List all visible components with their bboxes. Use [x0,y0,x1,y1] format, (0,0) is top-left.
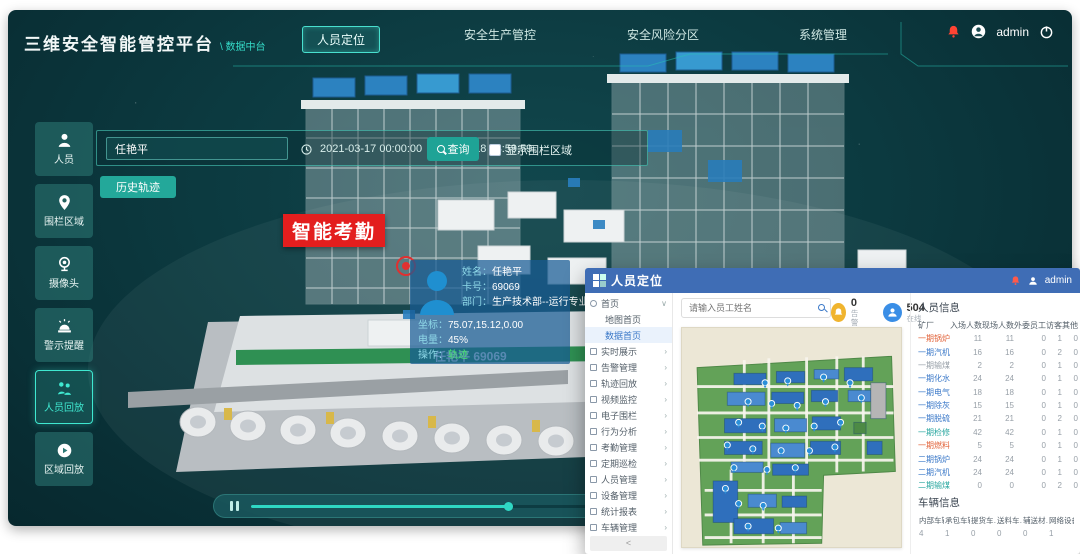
person-count-cell: 24 [950,466,982,479]
person-count-cell: 0 [1014,466,1046,479]
stat-text: 0告警 [851,298,863,327]
tooltip-identity-rows: 姓名：任艳平卡号：69069部门：生产技术部--运行专业 [462,265,589,310]
person-count-cell: 0 [1014,332,1046,345]
menu-item-label: 告警管理 [601,361,637,374]
plant-name-link[interactable]: 一期脱硫 [918,412,950,425]
person-count-cell: 1 [1046,466,1062,479]
person-count-cell: 1 [1046,359,1062,372]
person-count-cell: 24 [950,452,982,465]
person-count-cell: 1 [1046,452,1062,465]
person-count-cell: 0 [1062,452,1078,465]
menu-item-label: 视频监控 [601,393,637,406]
tooltip-row: 操作：轨迹 [418,348,523,363]
vehicle-count-cell: 0 [996,527,1022,540]
people-playback-icon [56,380,73,397]
vehicle-count-cell: 1 [1048,527,1074,540]
site-map-svg [682,328,901,547]
person-count-cell: 24 [950,372,982,385]
stat-value: 0 [851,298,863,309]
person-info-table: 矿厂入场人数现场人数外委员工访客其他 一期锅炉1111010一期汽机161602… [918,319,1078,493]
person-count-cell: 0 [1014,372,1046,385]
vehicle-col-1: 内部车辆 [918,514,944,527]
track-icon [590,380,597,387]
person-count-cell: 2 [1046,412,1062,425]
person-count-cell: 18 [950,386,982,399]
show-fence-checkbox-row: 显示围栏区域 [489,142,572,158]
overlay-topbar: 0告警504在线 [681,298,902,324]
inspection-icon [590,460,597,467]
sidebar-item-2[interactable]: 围栏区域 [35,184,93,238]
person-icon [56,132,73,149]
menu-item-label: 行为分析 [601,425,637,438]
table-row: 一期燃料55010 [918,439,1078,452]
person-count-cell: 0 [1014,479,1046,492]
header-tab-3[interactable]: 安全风险分区 [627,26,699,43]
query-toolbar: 2021-03-17 00:00:00 2021-03-18 23:59:59 … [96,130,648,166]
home-icon [590,300,597,307]
vehicle-info-title: 车辆信息 [918,495,1073,510]
person-count-cell: 0 [950,479,982,492]
menu-item-label: 轨迹回放 [601,377,637,390]
person-count-cell: 2 [950,359,982,372]
vehicle-col-2: 承包车辆 [944,514,970,527]
search-icon [437,145,445,153]
header-tab-2[interactable]: 安全生产管控 [464,26,536,43]
overlay-header: 人员定位 admin [585,268,1080,293]
tooltip-label: 电量： [418,335,448,346]
person-count-cell: 0 [1014,439,1046,452]
sidebar-item-label: 人员回放 [44,399,84,414]
table-row: 一期除灰1515010 [918,399,1078,412]
area-playback-icon [56,442,73,459]
overlay-body: 首页∨地图首页数据首页实时展示›告警管理›轨迹回放›视频监控›电子围栏›行为分析… [585,293,1080,554]
alert-icon [590,364,597,371]
person-count-cell: 1 [1046,426,1062,439]
monitor-icon [590,348,597,355]
chevron-right-icon: › [664,491,667,500]
table-row: 一期锅炉1111010 [918,332,1078,345]
user-avatar-icon [971,24,986,39]
personnel-location-panel: 人员定位 admin 首页∨地图首页数据首页实时展示›告警管理›轨迹回放›视频监… [585,268,1080,554]
table-row: 二期锅炉2424010 [918,452,1078,465]
playback-knob[interactable] [504,502,513,511]
person-count-cell: 1 [1046,332,1062,345]
table-row: 一期脱硫2121020 [918,412,1078,425]
menu-item-label: 人员管理 [601,473,637,486]
vehicle-col-6: 网络设备 [1048,514,1074,527]
person-count-cell: 24 [982,372,1014,385]
overlay-menu: 首页∨地图首页数据首页实时展示›告警管理›轨迹回放›视频监控›电子围栏›行为分析… [585,293,673,554]
clock-icon [301,144,312,155]
menu-subitem-label: 数据首页 [605,329,641,342]
tooltip-detail-rows: 坐标：75.07,15.12,0.00电量：45%操作：轨迹 [418,318,523,363]
header-tab-1[interactable]: 人员定位 [302,26,380,53]
plant-name-link[interactable]: 一期检修 [918,426,950,439]
vehicle-info-table: 内部车辆承包车辆提货车…送料车…辅送材…网络设备 410001 [918,514,1074,540]
attendance-icon [590,444,597,451]
menu-item-label: 首页 [601,297,619,310]
menu-item-label: 考勤管理 [601,441,637,454]
menu-item-12[interactable]: 车辆管理› [585,519,672,535]
person-count-cell: 21 [950,412,982,425]
platform-subtitle: \ 数据中台 [220,42,266,53]
person-count-cell: 5 [950,439,982,452]
menu-item-6[interactable]: 行为分析› [585,423,672,439]
plant-name-link[interactable]: 二期输煤 [918,479,950,492]
table-row: 二期输煤00020 [918,479,1078,492]
vehicle-count-cell: 1 [944,527,970,540]
person-count-cell: 24 [982,452,1014,465]
menu-item-11[interactable]: 统计报表› [585,503,672,519]
person-info-title: 人员信息 [918,300,1073,315]
person-table-col-5: 访客 [1046,319,1062,332]
tooltip-label: 坐标： [418,320,448,331]
menu-item-label: 电子围栏 [601,409,637,422]
sidebar-item-5[interactable]: 人员回放 [35,370,93,424]
plant-name-link[interactable]: 一期除灰 [918,399,950,412]
tooltip-label: 姓名： [462,267,492,278]
menu-subitem-2[interactable]: 数据首页 [585,327,672,343]
person-table-col-2: 入场人数 [950,319,982,332]
person-count-cell: 16 [982,345,1014,358]
query-button-label: 查询 [448,141,470,157]
person-count-cell: 0 [1062,412,1078,425]
person-count-cell: 0 [1014,452,1046,465]
plant-name-link[interactable]: 二期汽机 [918,466,950,479]
tooltip-value: 75.07,15.12,0.00 [448,320,523,331]
person-count-cell: 0 [1014,399,1046,412]
vehicle-col-3: 提货车… [970,514,996,527]
show-fence-checkbox[interactable] [489,144,501,156]
plant-name-link[interactable]: 一期汽机 [918,345,950,358]
person-count-cell: 18 [982,386,1014,399]
table-row: 一期电气1818010 [918,386,1078,399]
employee-search-input[interactable] [681,298,831,318]
table-row: 一期输煤22010 [918,359,1078,372]
person-count-cell: 0 [982,479,1014,492]
plant-name-link[interactable]: 二期锅炉 [918,452,950,465]
sidebar-item-6[interactable]: 区域回放 [35,432,93,486]
overlay-title: 人员定位 [611,272,663,289]
person-table-col-3: 现场人数 [982,319,1014,332]
person-count-cell: 11 [950,332,982,345]
overlay-bell-icon[interactable] [1010,275,1021,286]
vehicle-col-4: 送料车… [996,514,1022,527]
menu-item-10[interactable]: 设备管理› [585,487,672,503]
vehicle-icon [590,524,597,531]
menu-item-label: 定期巡检 [601,457,637,470]
fence-pin-icon [56,194,73,211]
table-row: 一期化水2424010 [918,372,1078,385]
sidebar-item-label: 区域回放 [44,461,84,476]
menu-item-label: 统计报表 [601,505,637,518]
person-table-col-1: 矿厂 [918,319,950,332]
plant-name-link[interactable]: 一期燃料 [918,439,950,452]
vehicle-col-5: 辅送材… [1022,514,1048,527]
tooltip-label: 卡号： [462,282,492,293]
device-icon [590,492,597,499]
person-count-cell: 0 [1014,426,1046,439]
chevron-right-icon: › [664,363,667,372]
camera-icon [56,256,73,273]
overlay-username[interactable]: admin [1045,275,1072,286]
overlay-info-column: 人员信息 矿厂入场人数现场人数外委员工访客其他 一期锅炉1111010一期汽机1… [910,293,1080,554]
sidebar-item-3[interactable]: 摄像头 [35,246,93,300]
person-count-cell: 0 [1062,479,1078,492]
header-tab-4[interactable]: 系统管理 [799,26,847,43]
vehicle-count-cell: 0 [970,527,996,540]
plant-name-link[interactable]: 一期化水 [918,372,950,385]
menu-item-label: 设备管理 [601,489,637,502]
menu-item-label: 车辆管理 [601,521,637,534]
table-row: 一期汽机1616020 [918,345,1078,358]
header-user-area: admin [946,24,1054,39]
playback-progress [251,505,509,508]
tooltip-row: 卡号：69069 [462,280,589,295]
sidebar-item-1[interactable]: 人员 [35,122,93,176]
tooltip-row: 坐标：75.07,15.12,0.00 [418,318,523,333]
menu-item-3[interactable]: 轨迹回放› [585,375,672,391]
power-icon[interactable] [1039,24,1054,39]
chevron-right-icon: › [664,427,667,436]
menu-item-9[interactable]: 人员管理› [585,471,672,487]
menu-item-8[interactable]: 定期巡检› [585,455,672,471]
person-count-cell: 0 [1062,439,1078,452]
chevron-right-icon: › [664,395,667,404]
person-count-cell: 0 [1014,345,1046,358]
plant-name-link[interactable]: 一期电气 [918,386,950,399]
plant-name-link[interactable]: 一期锅炉 [918,332,950,345]
person-count-cell: 0 [1062,399,1078,412]
menu-item-5[interactable]: 电子围栏› [585,407,672,423]
person-search-input[interactable] [106,137,288,160]
menu-subitem-label: 地图首页 [605,313,641,326]
chevron-right-icon: › [664,507,667,516]
person-count-cell: 16 [950,345,982,358]
page-title: 三维安全智能管控平台\ 数据中台 [24,30,266,55]
person-count-cell: 0 [1062,466,1078,479]
person-count-cell: 2 [1046,345,1062,358]
person-count-cell: 42 [982,426,1014,439]
menu-item-7[interactable]: 考勤管理› [585,439,672,455]
overlay-center: 0告警504在线 [673,293,910,554]
person-count-cell: 24 [982,466,1014,479]
table-row: 二期汽机2424010 [918,466,1078,479]
sidebar-item-label: 人员 [54,151,74,166]
person-count-cell: 0 [1062,345,1078,358]
person-table-col-6: 其他 [1062,319,1078,332]
person-count-cell: 0 [1062,359,1078,372]
person-count-cell: 21 [982,412,1014,425]
person-table-col-4: 外委员工 [1014,319,1046,332]
tooltip-row: 姓名：任艳平 [462,265,589,280]
pause-button[interactable] [230,501,239,511]
smart-attendance-badge: 智能考勤 [283,214,385,247]
tooltip-label: 部门： [462,297,492,308]
person-count-cell: 0 [1062,372,1078,385]
menu-collapse-button[interactable]: < [590,536,667,551]
query-button[interactable]: 查询 [427,137,479,161]
tooltip-row: 部门：生产技术部--运行专业 [462,295,589,310]
stat-label: 告警 [851,309,863,327]
person-count-cell: 1 [1046,399,1062,412]
tooltip-value: 生产技术部--运行专业 [492,297,589,308]
person-tooltip: 姓名：任艳平卡号：69069部门：生产技术部--运行专业 坐标：75.07,15… [410,260,570,364]
fence-icon [590,412,597,419]
tooltip-value: 45% [448,335,468,346]
plant-name-link[interactable]: 一期输煤 [918,359,950,372]
alarm-icon [56,318,73,335]
chevron-right-icon: › [664,379,667,388]
person-count-cell: 2 [982,359,1014,372]
menu-item-2[interactable]: 告警管理› [585,359,672,375]
history-track-button[interactable]: 历史轨迹 [100,176,176,198]
alarm-count-icon [831,303,846,322]
overlay-header-right: admin [1010,275,1072,286]
tooltip-value: 69069 [492,282,520,293]
notification-bell-icon[interactable] [946,24,961,39]
sidebar-item-label: 摄像头 [49,275,79,290]
person-count-cell: 1 [1046,386,1062,399]
menu-subitem-1[interactable]: 地图首页 [585,311,672,327]
overlay-user-icon [1028,276,1038,286]
online-count-icon [883,303,902,322]
search-icon[interactable] [818,304,825,311]
sidebar-item-label: 警示提醒 [44,337,84,352]
chevron-right-icon: › [664,443,667,452]
vehicle-count-cell: 0 [1022,527,1048,540]
person-count-cell: 42 [950,426,982,439]
person-count-cell: 0 [1014,412,1046,425]
person-count-cell: 0 [1014,386,1046,399]
person-count-cell: 0 [1062,426,1078,439]
chevron-right-icon: › [664,475,667,484]
person-count-cell: 5 [982,439,1014,452]
overlay-logo-icon [593,274,606,287]
tooltip-value[interactable]: 轨迹 [448,350,468,361]
person-count-cell: 15 [982,399,1014,412]
tooltip-label: 操作： [418,350,448,361]
site-map [681,327,902,548]
person-count-cell: 11 [982,332,1014,345]
employee-search [681,298,831,318]
menu-item-label: 实时展示 [601,345,637,358]
video-icon [590,396,597,403]
menu-item-home[interactable]: 首页∨ [585,295,672,311]
person-count-cell: 2 [1046,479,1062,492]
vehicle-count-cell: 4 [918,527,944,540]
person-avatar-icon [418,268,456,316]
chevron-right-icon: › [664,347,667,356]
person-count-cell: 1 [1046,372,1062,385]
tooltip-value: 任艳平 [492,267,522,278]
behavior-icon [590,428,597,435]
chevron-right-icon: › [664,523,667,532]
table-row: 一期检修4242010 [918,426,1078,439]
tooltip-row: 电量：45% [418,333,523,348]
username[interactable]: admin [996,25,1029,39]
chevron-right-icon: › [664,459,667,468]
person-count-cell: 0 [1062,332,1078,345]
chevron-down-icon: ∨ [661,299,667,308]
report-icon [590,508,597,515]
menu-item-1[interactable]: 实时展示› [585,343,672,359]
show-fence-label: 显示围栏区域 [506,142,572,158]
stat-告警: 0告警 [831,298,863,327]
platform-title: 三维安全智能管控平台 [24,35,214,54]
sidebar-item-label: 围栏区域 [44,213,84,228]
person-count-cell: 1 [1046,439,1062,452]
date-start: 2021-03-17 00:00:00 [320,143,422,155]
menu-item-4[interactable]: 视频监控› [585,391,672,407]
sidebar-item-4[interactable]: 警示提醒 [35,308,93,362]
people-icon [590,476,597,483]
chevron-right-icon: › [664,411,667,420]
person-count-cell: 0 [1062,386,1078,399]
person-count-cell: 15 [950,399,982,412]
person-count-cell: 0 [1014,359,1046,372]
